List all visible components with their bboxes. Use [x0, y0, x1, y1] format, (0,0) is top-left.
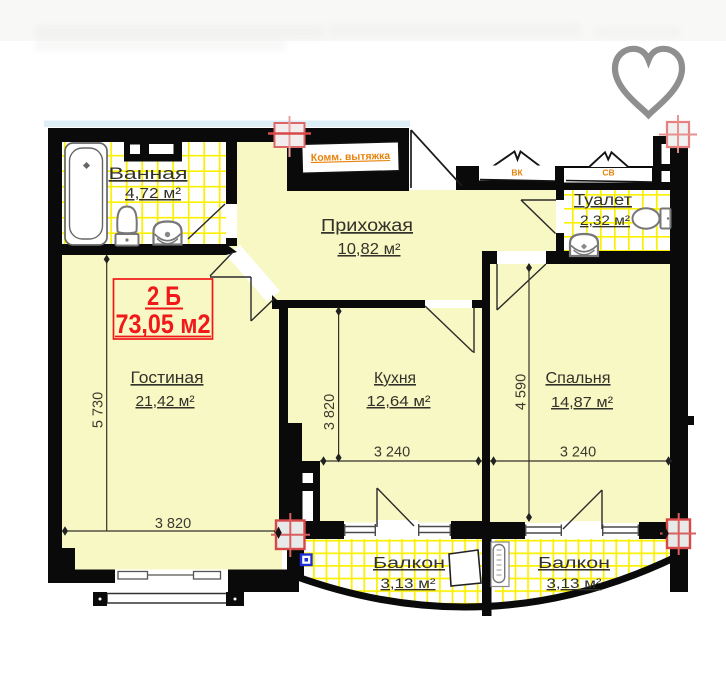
svg-text:2 Б: 2 Б [147, 281, 181, 311]
svg-text:4 590: 4 590 [514, 374, 530, 410]
svg-text:Балкон: Балкон [373, 555, 445, 572]
svg-text:3,13 м²: 3,13 м² [547, 576, 603, 591]
svg-text:Прихожая: Прихожая [321, 215, 413, 235]
svg-text:3,13 м²: 3,13 м² [381, 576, 437, 591]
svg-text:Спальня: Спальня [546, 370, 611, 387]
svg-text:ВК: ВК [511, 168, 523, 178]
svg-text:2,32 м²: 2,32 м² [580, 213, 631, 228]
svg-text:3 240: 3 240 [374, 445, 410, 461]
svg-text:3 820: 3 820 [155, 516, 191, 532]
svg-text:Гостиная: Гостиная [131, 369, 204, 387]
svg-text:СВ: СВ [602, 168, 614, 178]
svg-text:Балкон: Балкон [538, 555, 610, 572]
svg-text:10,82 м²: 10,82 м² [338, 241, 401, 258]
svg-text:Кухня: Кухня [374, 370, 416, 387]
svg-text:12,64 м²: 12,64 м² [367, 393, 431, 410]
svg-text:4,72 м²: 4,72 м² [125, 185, 181, 202]
svg-text:73,05 м2: 73,05 м2 [116, 309, 211, 339]
svg-text:5 730: 5 730 [91, 392, 107, 428]
svg-text:3 240: 3 240 [560, 445, 596, 461]
svg-text:21,42 м²: 21,42 м² [136, 393, 195, 410]
svg-text:Ванная: Ванная [109, 164, 188, 183]
svg-text:Туалет: Туалет [574, 192, 632, 209]
svg-text:Комм. вытяжка: Комм. вытяжка [311, 150, 391, 164]
svg-text:14,87 м²: 14,87 м² [551, 394, 613, 411]
svg-text:3 820: 3 820 [322, 394, 338, 430]
